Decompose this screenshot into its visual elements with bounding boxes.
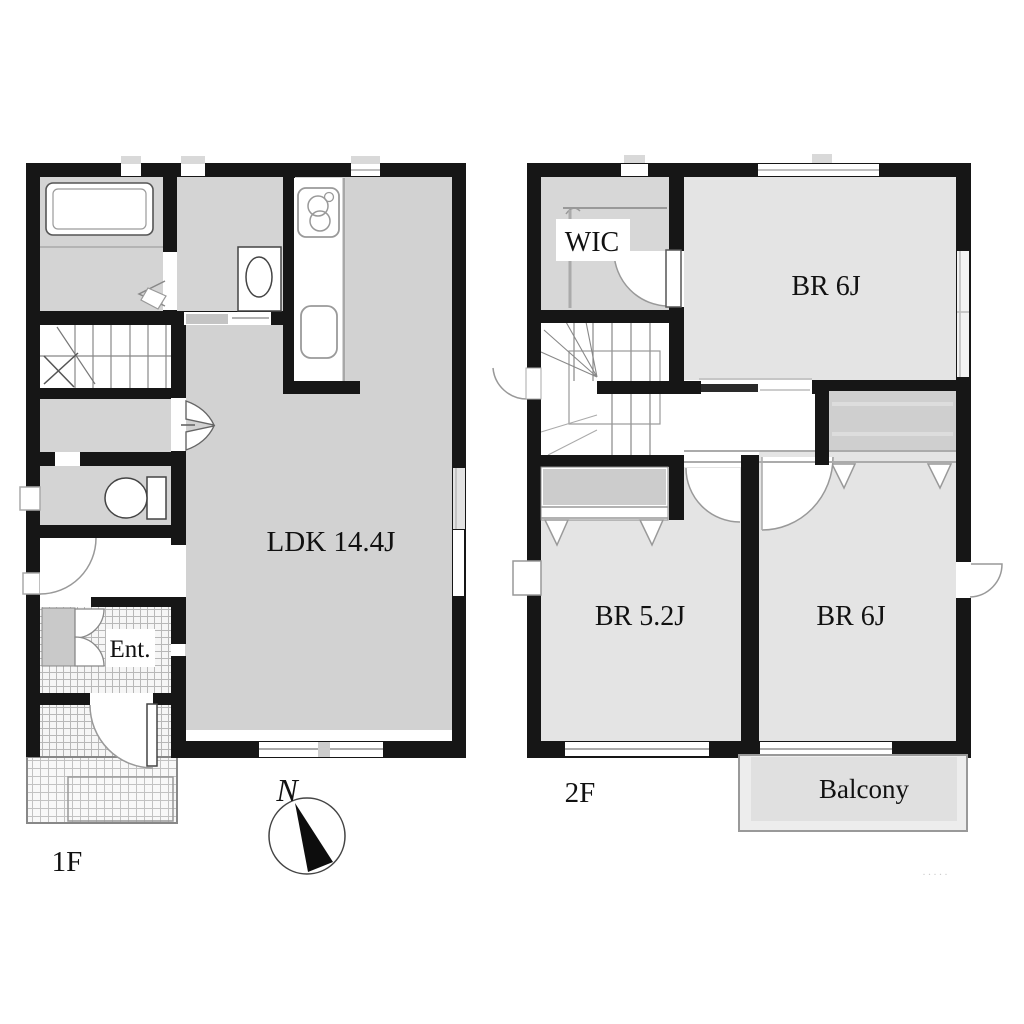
svg-text:BR 6J: BR 6J xyxy=(816,601,885,632)
svg-text:WIC: WIC xyxy=(565,227,619,258)
svg-text:N: N xyxy=(275,772,299,808)
svg-text:2F: 2F xyxy=(565,777,596,809)
svg-text:1F: 1F xyxy=(52,846,83,878)
svg-text:Ent.: Ent. xyxy=(110,636,151,663)
svg-text:Balcony: Balcony xyxy=(819,774,909,804)
svg-text:LDK 14.4J: LDK 14.4J xyxy=(267,526,396,558)
svg-text:BR 6J: BR 6J xyxy=(791,271,860,302)
svg-text:. . . . .: . . . . . xyxy=(923,866,948,878)
svg-text:BR 5.2J: BR 5.2J xyxy=(595,601,685,632)
